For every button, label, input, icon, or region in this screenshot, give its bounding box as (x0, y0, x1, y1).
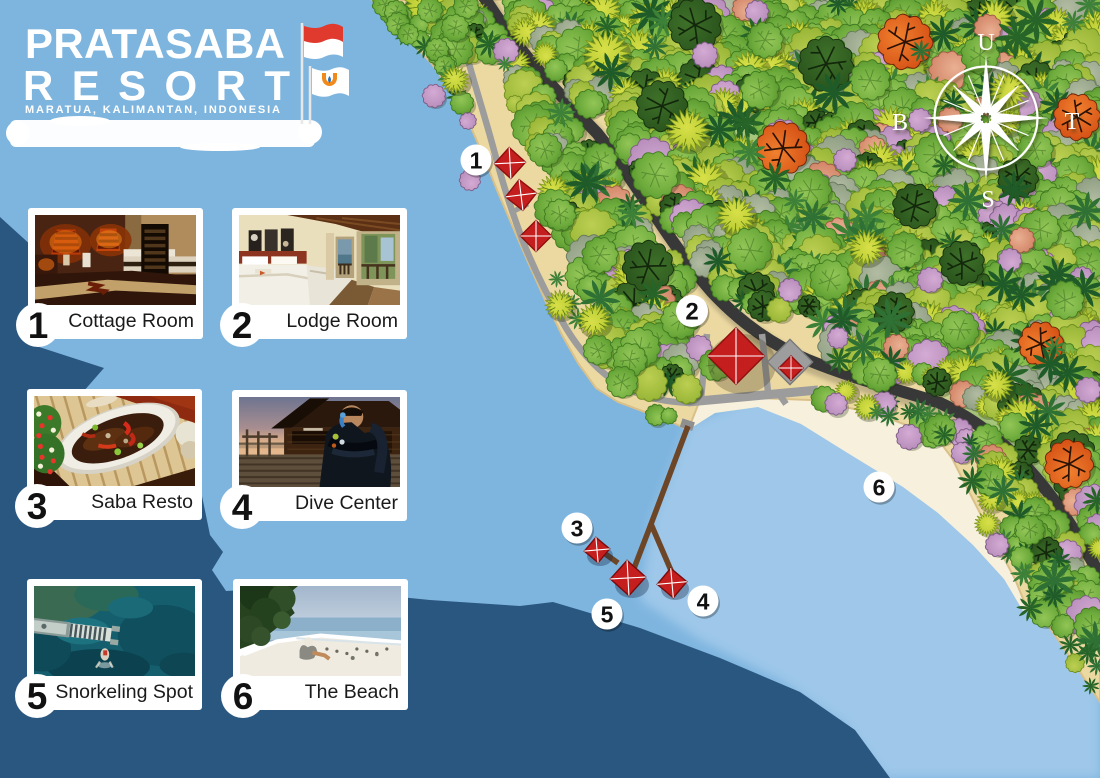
svg-text:2: 2 (685, 299, 698, 326)
svg-text:T: T (1065, 109, 1080, 135)
svg-text:1: 1 (470, 147, 483, 173)
svg-text:5: 5 (27, 676, 48, 717)
svg-text:6: 6 (233, 676, 254, 717)
svg-text:Saba Resto: Saba Resto (91, 491, 193, 513)
svg-text:Snorkeling Spot: Snorkeling Spot (55, 681, 193, 703)
svg-text:PRATASABA: PRATASABA (25, 20, 285, 67)
svg-text:4: 4 (697, 588, 710, 614)
svg-text:4: 4 (232, 487, 253, 528)
svg-text:3: 3 (571, 515, 584, 541)
svg-text:3: 3 (27, 486, 48, 527)
svg-text:U: U (977, 30, 994, 56)
svg-text:Cottage Room: Cottage Room (68, 310, 194, 332)
svg-text:6: 6 (873, 474, 886, 500)
svg-text:2: 2 (232, 305, 253, 346)
svg-text:B: B (892, 110, 908, 136)
svg-text:Dive Center: Dive Center (295, 492, 398, 514)
svg-text:The Beach: The Beach (305, 681, 399, 703)
svg-text:S: S (981, 187, 994, 213)
svg-text:5: 5 (601, 601, 614, 627)
svg-text:Lodge Room: Lodge Room (286, 310, 398, 332)
svg-text:1: 1 (28, 305, 49, 346)
